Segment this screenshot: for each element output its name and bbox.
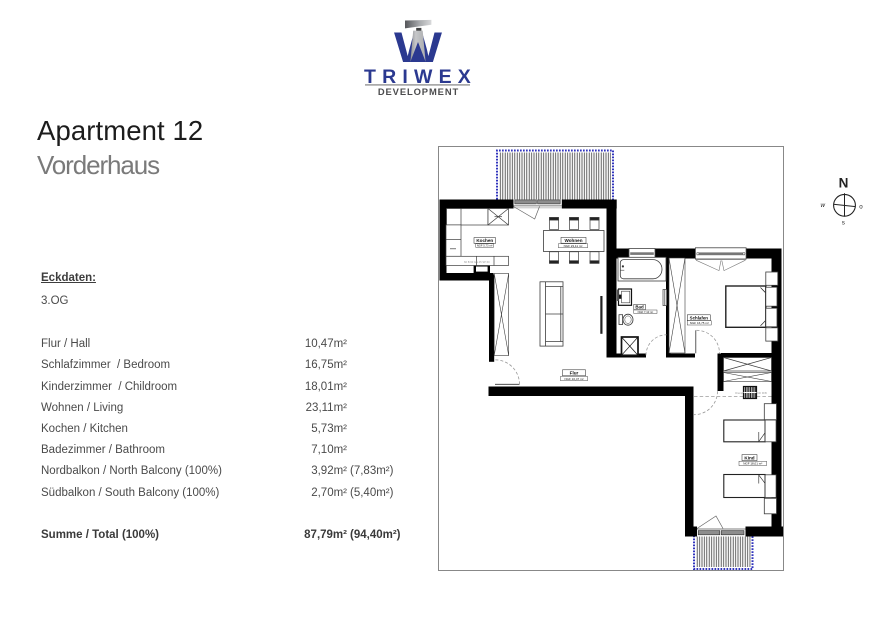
svg-text:s: s (842, 220, 845, 227)
svg-text:o: o (859, 204, 863, 211)
svg-text:NGF 7,10 m²: NGF 7,10 m² (638, 310, 654, 314)
svg-text:Flur: Flur (570, 371, 579, 376)
svg-text:NGF 18,01 m²: NGF 18,01 m² (743, 462, 762, 466)
svg-text:NGF 5,73 m²: NGF 5,73 m² (477, 244, 493, 248)
svg-text:Kochen: Kochen (476, 238, 493, 243)
svg-text:NGF 10,47 m²: NGF 10,47 m² (564, 377, 583, 381)
svg-text:N: N (839, 175, 849, 190)
svg-text:60 B 60 GS 45 SP 60: 60 B 60 GS 45 SP 60 (464, 260, 490, 264)
svg-text:Schlafen: Schlafen (690, 315, 709, 320)
svg-text:NGF 23,11 m²: NGF 23,11 m² (564, 244, 583, 248)
svg-text:Wohnen: Wohnen (564, 238, 582, 243)
svg-text:NGF 16,75 m²: NGF 16,75 m² (690, 321, 709, 325)
svg-text:DEVELOPMENT: DEVELOPMENT (378, 86, 459, 97)
svg-text:Bad: Bad (635, 305, 644, 310)
svg-text:Kind: Kind (744, 455, 754, 460)
svg-text:w: w (821, 202, 826, 209)
